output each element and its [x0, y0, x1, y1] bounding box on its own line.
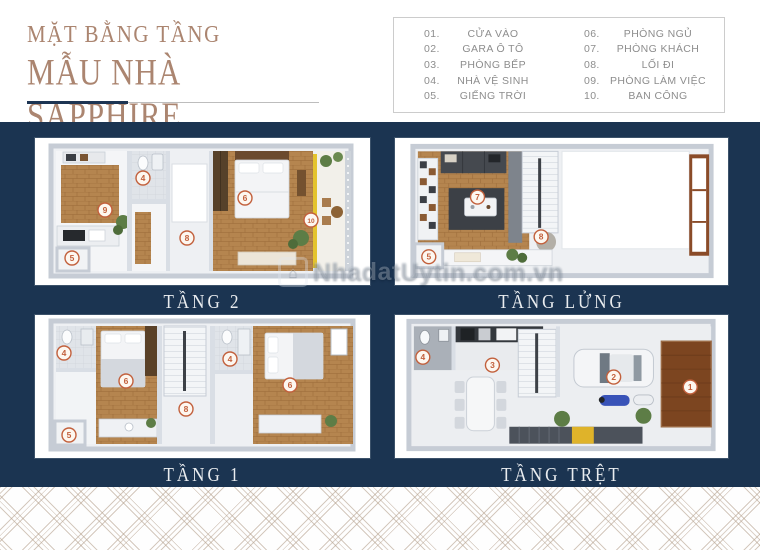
bedroom-2: [253, 326, 353, 444]
room-badge-6: 6: [238, 191, 252, 205]
room-badge-4: 4: [136, 171, 150, 185]
underline-navy-segment: [27, 101, 128, 104]
svg-text:6: 6: [288, 380, 293, 390]
legend-number: 03.: [424, 59, 450, 71]
dining-table: [455, 377, 507, 431]
plan-label-tang-lung: TẦNG LỬNG: [395, 291, 728, 314]
legend-number: 08.: [584, 59, 610, 71]
room-badge-5: 5: [62, 428, 76, 442]
lattice-pattern-footer: [0, 487, 760, 550]
balcony: [317, 151, 351, 271]
plan-card-tang-tret: 4321: [395, 315, 728, 458]
legend-number: 10.: [584, 90, 610, 102]
svg-text:4: 4: [228, 354, 233, 364]
svg-text:6: 6: [243, 193, 248, 203]
room-badge-6: 6: [119, 374, 133, 388]
room-badge-1: 1: [683, 380, 697, 394]
svg-text:5: 5: [70, 253, 75, 263]
room-badge-5: 5: [422, 250, 436, 264]
floor-plan-tang-tret: 4321: [395, 315, 728, 458]
svg-text:4: 4: [420, 352, 425, 362]
plan-label-tang-1: TẦNG 1: [35, 464, 370, 487]
legend-item: 05.GIẾNG TRỜI: [394, 88, 554, 104]
svg-text:2: 2: [611, 372, 616, 382]
plan-card-tang-lung: 785: [395, 138, 728, 285]
svg-text:4: 4: [141, 173, 146, 183]
legend-item: 04.NHÀ VỆ SINH: [394, 73, 554, 89]
room-badge-4: 4: [416, 350, 430, 364]
plan-label-tang-tret: TẦNG TRỆT: [395, 464, 728, 487]
legend-item: 09.PHÒNG LÀM VIỆC: [554, 73, 724, 89]
legend-label: PHÒNG BẾP: [450, 59, 554, 71]
room-badge-6: 6: [283, 378, 297, 392]
legend-label: PHÒNG KHÁCH: [610, 43, 724, 55]
svg-text:8: 8: [539, 232, 544, 242]
walkway-strip: [562, 251, 689, 266]
plan-card-tang-2: 9458610: [35, 138, 370, 285]
svg-text:5: 5: [67, 430, 72, 440]
plan-card-tang-1: 465846: [35, 315, 370, 458]
legend-item: 01.CỬA VÀO: [394, 26, 554, 42]
stairs: [518, 329, 556, 397]
room-badge-3: 3: [485, 358, 499, 372]
room-badge-10: 10: [304, 213, 318, 227]
legend-item: 06.PHÒNG NGỦ: [554, 26, 724, 42]
floor-plan-tang-lung: 785: [395, 138, 728, 285]
svg-text:1: 1: [688, 382, 693, 392]
legend-item: 10.BAN CÔNG: [554, 88, 724, 104]
hall-skylight-void: [170, 151, 209, 271]
legend-item: 07.PHÒNG KHÁCH: [554, 42, 724, 58]
legend-number: 09.: [584, 75, 610, 87]
svg-text:8: 8: [185, 233, 190, 243]
double-height-void: [562, 151, 689, 248]
underline-gray-segment: [128, 102, 319, 103]
stairs-hall: [162, 326, 210, 444]
legend-label: GIẾNG TRỜI: [450, 90, 554, 102]
legend-item: 03.PHÒNG BẾP: [394, 57, 554, 73]
plan-label-tang-2: TẦNG 2: [35, 291, 370, 314]
room-bedroom: [213, 151, 313, 271]
legend-label: BAN CÔNG: [610, 90, 724, 102]
room-badge-4: 4: [57, 346, 71, 360]
room-badge-8: 8: [180, 231, 194, 245]
legend-item: 02.GARA Ô TÔ: [394, 42, 554, 58]
legend-number: 01.: [424, 28, 450, 40]
legend-label: PHÒNG NGỦ: [610, 28, 724, 40]
legend-grid: 01.CỬA VÀO02.GARA Ô TÔ03.PHÒNG BẾP04.NHÀ…: [393, 17, 725, 113]
bathroom-2: [215, 326, 253, 374]
room-badge-2: 2: [607, 370, 621, 384]
legend-number: 07.: [584, 43, 610, 55]
poster-title: MẶT BẰNG TẦNG MẪU NHÀ SAPPHIRE: [27, 20, 327, 123]
title-underline: [27, 101, 319, 104]
room-badge-7: 7: [471, 190, 485, 204]
floor-plan-poster: MẶT BẰNG TẦNG MẪU NHÀ SAPPHIRE 01.CỬA VÀ…: [0, 0, 760, 550]
legend-label: NHÀ VỆ SINH: [450, 75, 554, 87]
counter-ledge: [435, 249, 552, 266]
legend-number: 06.: [584, 28, 610, 40]
svg-text:4: 4: [62, 348, 67, 358]
legend-number: 02.: [424, 43, 450, 55]
svg-text:10: 10: [307, 218, 315, 225]
partition-cabinet: [508, 151, 522, 242]
floor-plan-tang-2: 9458610: [35, 138, 370, 285]
legend-item: 08.LỐI ĐI: [554, 57, 724, 73]
legend-label: GARA Ô TÔ: [450, 43, 554, 55]
motorbike: [599, 395, 654, 406]
svg-text:6: 6: [124, 376, 129, 386]
legend-label: PHÒNG LÀM VIỆC: [610, 75, 724, 87]
room-badge-8: 8: [179, 402, 193, 416]
legend-label: LỐI ĐI: [610, 59, 724, 71]
stairs: [522, 151, 558, 233]
legend-number: 05.: [424, 90, 450, 102]
svg-text:8: 8: [184, 404, 189, 414]
glass-door-strip: [313, 154, 317, 268]
room-badge-9: 9: [98, 203, 112, 217]
room-badge-4: 4: [223, 352, 237, 366]
legend-label: CỬA VÀO: [450, 28, 554, 40]
svg-text:7: 7: [475, 192, 480, 202]
svg-text:3: 3: [490, 360, 495, 370]
floor-plan-tang-1: 465846: [35, 315, 370, 458]
svg-text:9: 9: [103, 205, 108, 215]
title-line-1: MẶT BẰNG TẦNG: [27, 20, 327, 49]
svg-text:5: 5: [426, 252, 431, 262]
room-badge-5: 5: [65, 251, 79, 265]
legend-number: 04.: [424, 75, 450, 87]
floor-plans-board: 9458610: [0, 122, 760, 487]
room-toilet: [132, 151, 166, 271]
window-wall: [689, 154, 709, 255]
room-badge-8: 8: [534, 230, 548, 244]
